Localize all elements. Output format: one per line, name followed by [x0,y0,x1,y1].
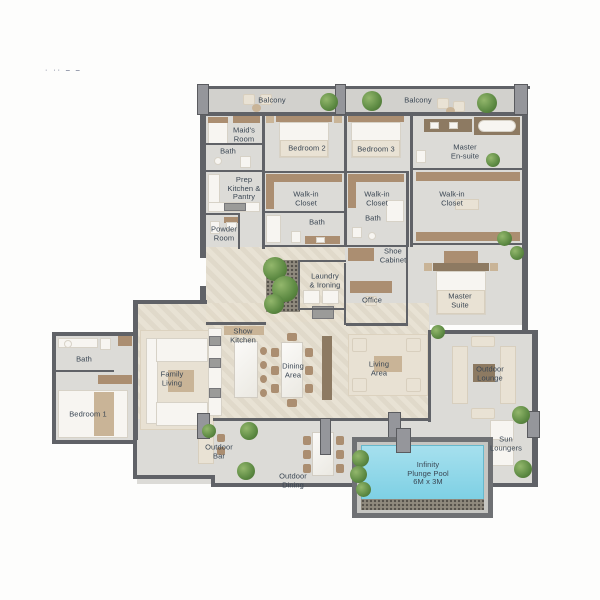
room-label-family-living: Family Living [161,370,184,387]
wall [133,300,138,440]
plant [264,294,284,314]
room-label-master-suite: Master Suite [448,292,472,309]
room-label-laundry: Laundry & Ironing [310,272,341,289]
closet-shelf [416,172,520,181]
room-label-bath-bed1: Bath [76,356,92,365]
plant [240,422,258,440]
kitchen-island [234,341,258,398]
outdoor-sofa [452,346,468,404]
wall [346,323,408,326]
column [396,428,411,453]
nightstand [334,115,342,123]
wall [298,260,346,262]
sofa [156,338,208,362]
chair [305,384,313,393]
room-label-living-area: Living Area [369,360,389,377]
room-label-infinity-pool: Infinity Plunge Pool 6M x 3M [407,461,449,487]
wall [532,330,538,487]
room-label-sun-loungers: Sun Loungers [490,435,522,452]
plant [477,93,497,113]
wardrobe-maids [233,115,260,123]
room-label-bedroom-3: Bedroom 3 [357,146,395,155]
closet-shelf [348,174,404,182]
plant [486,153,500,167]
nightstand [490,263,498,271]
chair [287,333,297,341]
wall [262,112,265,249]
stool [260,347,267,355]
stool [260,375,267,383]
toilet [291,231,301,243]
toilet [100,338,111,350]
wall [413,168,522,170]
washer [303,290,320,304]
pouf [471,408,495,419]
appliance [209,358,221,368]
wall [52,332,136,336]
wall [133,475,215,479]
shoe-cabinet [348,248,374,261]
plant [497,231,512,246]
chair [303,436,311,445]
plant [320,93,338,111]
chair [336,450,344,459]
master-headboard [433,263,489,271]
office-desk [350,281,392,293]
plant [362,91,382,111]
armchair [352,338,367,352]
wardrobe [98,375,132,384]
plant [512,406,530,424]
room-label-balcony-left: Balcony [258,97,285,106]
wall [410,112,413,247]
room-label-show-kitchen: Show Kitchen [230,327,256,344]
nightstand [424,263,432,271]
closet-shelf [266,182,274,209]
stove [224,203,246,211]
wall [137,300,207,304]
chair [303,450,311,459]
room-label-outdoor-dining: Outdoor Dining [279,472,307,489]
wall [52,440,137,444]
plant [356,482,371,497]
wall [344,112,347,247]
column [514,84,528,115]
wall [298,308,346,310]
sink [316,237,325,243]
plant [510,246,524,260]
appliance [209,388,221,398]
room-label-walkin-closet-master: Walk-in Closet [439,190,464,207]
room-label-outdoor-bar: Outdoor Bar [205,443,233,460]
wall [52,332,56,444]
room-label-bedroom-1: Bedroom 1 [69,411,107,420]
plant [514,460,532,478]
closet-shelf [266,174,342,182]
wall [206,170,262,172]
wall [522,112,528,334]
pool-pebbles [361,499,484,510]
armchair [406,338,421,352]
wall [56,370,114,372]
closet-shelf [348,182,356,208]
wall [344,263,346,325]
wall [298,260,300,310]
wall [206,322,266,325]
toilet [352,227,362,238]
appliance [209,336,221,346]
bed-maids-pillow [208,117,228,123]
room-label-shoe-cabinet: Shoe Cabinet [380,247,407,264]
sink [430,122,439,129]
console [322,336,332,400]
room-label-maids-room: Maid's Room [233,126,255,143]
chair [336,464,344,473]
wall [200,86,530,89]
plant [352,450,369,467]
armchair [352,378,367,392]
room-label-walkin-closet-bed3: Walk-in Closet [364,190,389,207]
stool [260,389,267,397]
chair [271,348,279,357]
sink [449,122,458,129]
chair [271,384,279,393]
stool [217,434,225,442]
wall [238,213,240,249]
dryer [322,290,339,304]
wall [264,245,346,247]
chair [305,348,313,357]
room-label-prep-kitchen: Prep Kitchen & Pantry [227,176,260,202]
floor-plan: · ·· – – [0,0,600,600]
chair [305,366,313,375]
wall [264,171,344,173]
room-label-dining-area: Dining Area [282,362,304,379]
wall [133,440,137,477]
chair [336,436,344,445]
room-label-bedroom-2: Bedroom 2 [288,145,326,154]
sink [368,232,376,240]
plant [431,325,445,339]
room-label-balcony-right: Balcony [404,97,431,106]
glass-wall [428,334,431,422]
chair [287,399,297,407]
toilet [416,150,426,163]
bench [444,251,478,263]
wall [200,112,528,116]
room-label-bath-bed3: Bath [365,215,381,224]
shower [266,215,281,243]
wall [346,171,406,173]
stool [260,361,267,369]
plant [237,462,255,480]
bath-cabinet [118,336,132,346]
room-label-bath-maids: Bath [220,148,236,157]
room-label-outdoor-lounge: Outdoor Lounge [476,365,504,382]
cropped-title-marks: · ·· – – [45,67,82,74]
bathtub [478,120,516,132]
sink [64,340,72,348]
pouf [471,336,495,347]
toilet [240,156,251,168]
room-label-powder-room: Powder Room [211,225,237,242]
bed2-headboard [276,115,332,122]
column [320,418,331,455]
room-label-walkin-closet-bed2: Walk-in Closet [293,190,318,207]
column [197,84,209,115]
chair [271,366,279,375]
room-label-office: Office [362,297,382,306]
nightstand [266,115,274,123]
balcony-chair [243,94,255,105]
plant [350,466,367,483]
wall [406,171,409,247]
room-label-master-ensuite: Master En-suite [451,143,479,160]
room-label-bath-bed2: Bath [309,219,325,228]
armchair [406,378,421,392]
plant [202,424,216,438]
wall [206,213,240,215]
bed3-headboard [348,115,404,122]
sink [214,157,222,165]
wall [264,211,344,213]
